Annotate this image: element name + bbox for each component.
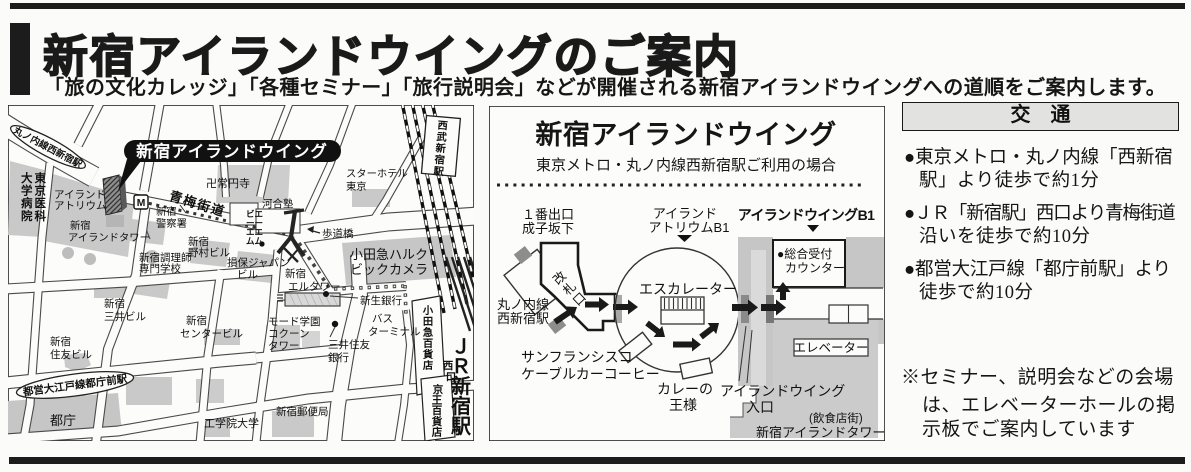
svg-text:新生銀行: 新生銀行 [360,294,402,307]
svg-text:西新宿駅: 西新宿駅 [497,311,549,326]
svg-text:新宿: 新宿 [104,297,125,310]
svg-text:モード学園: モード学園 [268,315,321,328]
svg-text:サンフランシスコ: サンフランシスコ [521,349,633,365]
svg-text:バス: バス [372,313,393,325]
svg-text:新宿郵便局: 新宿郵便局 [276,405,329,418]
svg-text:ケーブルカーコーヒー: ケーブルカーコーヒー [521,366,660,382]
svg-text:三井ビル: 三井ビル [104,310,146,323]
svg-text:●総合受付: ●総合受付 [777,246,832,261]
svg-text:(飲食店街): (飲食店街) [809,411,863,425]
svg-text:河合塾: 河合塾 [262,197,294,210]
svg-text:東京メトロ・丸ノ内線西新宿駅ご利用の場合: 東京メトロ・丸ノ内線西新宿駅ご利用の場合 [536,157,836,174]
svg-text:エレベーター: エレベーター [793,341,868,355]
svg-text:センタービル: センタービル [180,328,243,340]
svg-text:新宿: 新宿 [156,205,177,218]
svg-text:京王百貨店: 京王百貨店 [431,383,444,438]
svg-text:スターホテル: スターホテル [346,168,408,180]
svg-text:王様: 王様 [669,397,697,413]
svg-text:ビックカメラ: ビックカメラ [350,262,428,277]
svg-text:銀行: 銀行 [328,351,349,364]
svg-text:アイランドタワー: アイランドタワー [68,232,150,244]
svg-text:アイランドウイングB1: アイランドウイングB1 [738,207,875,223]
svg-text:新宿アイランドウイング: 新宿アイランドウイング [535,119,836,150]
svg-text:警察署: 警察署 [156,217,187,230]
svg-text:ビエーーエエムム: ビエーーエエムム [246,209,264,246]
svg-text:丸ノ内線: 丸ノ内線 [497,297,549,312]
svg-text:野村ビル: 野村ビル [188,246,230,259]
svg-text:大東学京病医院科: 大東学京病医院科 [21,171,47,223]
svg-text:新宿: 新宿 [186,314,207,327]
svg-text:１番出口: １番出口 [522,207,574,222]
svg-text:エスカレーター: エスカレーター [639,281,737,297]
svg-text:カウンター: カウンター [785,261,845,275]
svg-text:損保ジャパン: 損保ジャパン [227,256,290,269]
svg-text:アイランドウイング: アイランドウイング [720,383,845,399]
svg-text:新宿アイランドウイング: 新宿アイランドウイング [136,141,328,161]
svg-text:M: M [137,198,146,209]
svg-text:タワー: タワー [268,340,300,352]
svg-text:三井住友: 三井住友 [328,338,370,351]
svg-text:東京: 東京 [346,180,367,193]
svg-text:小田急百貨店: 小田急百貨店 [422,304,434,372]
svg-text:ビル: ビル [237,269,258,281]
svg-text:ＪＲ新宿駅: ＪＲ新宿駅 [450,336,471,438]
svg-text:小田急ハルク: 小田急ハルク [350,247,428,262]
svg-text:新宿: 新宿 [50,335,71,348]
svg-text:ターミナル: ターミナル [368,326,421,338]
svg-text:住友ビル: 住友ビル [50,348,92,361]
svg-text:都庁: 都庁 [50,413,76,428]
svg-text:歩道橋: 歩道橋 [322,227,354,240]
svg-text:工学院大学: 工学院大学 [204,416,259,430]
svg-text:アイランド: アイランド [653,206,717,221]
svg-text:エルタワー: エルタワー [288,281,341,293]
svg-text:入口: 入口 [746,399,774,415]
svg-text:アトリウムB1: アトリウムB1 [649,220,730,235]
svg-text:コクーン: コクーン [268,328,309,340]
svg-text:成子坂下: 成子坂下 [522,221,574,236]
svg-text:卍常円寺: 卍常円寺 [206,177,250,190]
svg-text:カレーの: カレーの [657,381,713,397]
svg-text:新宿: 新宿 [285,267,306,280]
svg-text:アトリウム: アトリウム [54,200,107,212]
svg-text:専門学校: 専門学校 [139,262,181,275]
svg-text:新宿: 新宿 [70,219,91,232]
svg-text:新宿アイランドタワー: 新宿アイランドタワー [756,425,885,440]
